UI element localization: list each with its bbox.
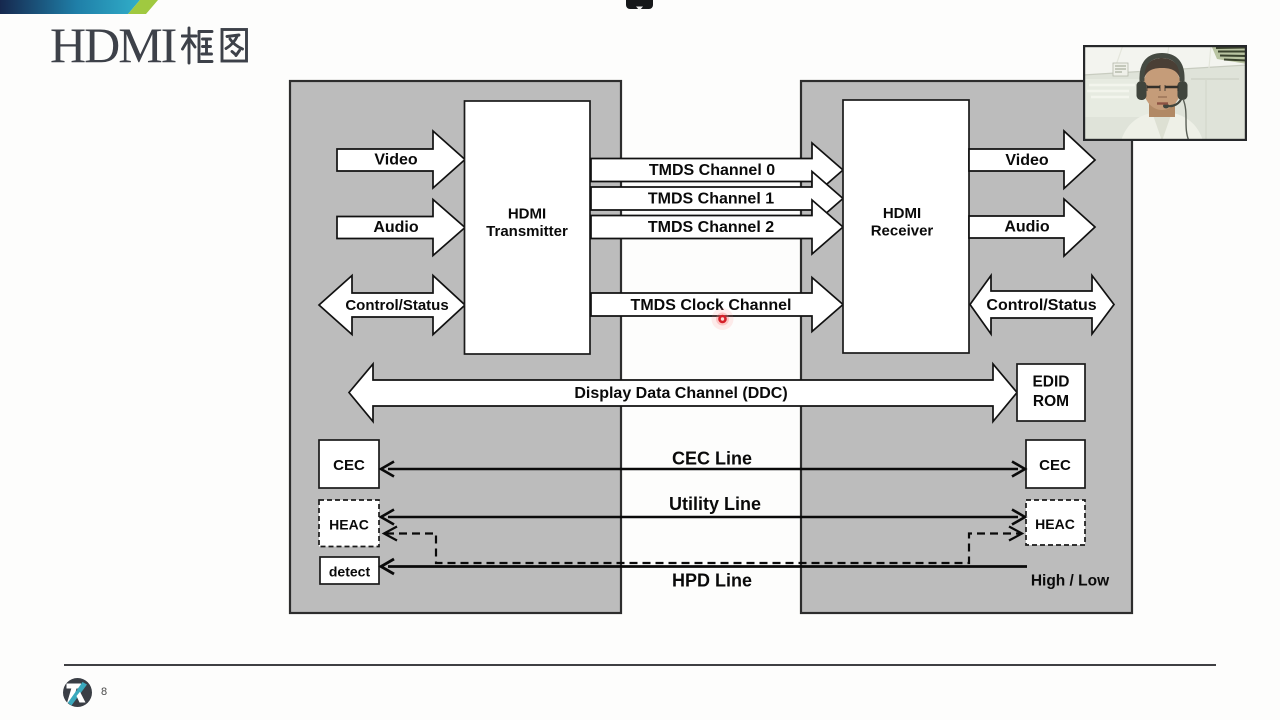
- svg-text:Utility Line: Utility Line: [669, 494, 761, 514]
- svg-text:TMDS Channel 0: TMDS Channel 0: [649, 162, 775, 179]
- svg-text:Receiver: Receiver: [871, 223, 934, 240]
- svg-text:Display Data Channel (DDC): Display Data Channel (DDC): [574, 385, 787, 402]
- svg-text:Audio: Audio: [373, 219, 419, 236]
- svg-text:ROM: ROM: [1033, 393, 1069, 410]
- svg-text:TMDS Channel 1: TMDS Channel 1: [648, 191, 774, 208]
- svg-text:CEC: CEC: [333, 457, 365, 474]
- svg-text:Control/Status: Control/Status: [986, 297, 1096, 314]
- svg-text:Audio: Audio: [1004, 219, 1050, 236]
- svg-text:EDID: EDID: [1032, 374, 1069, 391]
- svg-text:HDMI: HDMI: [883, 205, 921, 222]
- svg-text:HPD Line: HPD Line: [672, 571, 752, 591]
- svg-text:HDMI: HDMI: [508, 206, 546, 223]
- svg-text:HEAC: HEAC: [1035, 516, 1075, 532]
- svg-text:Control/Status: Control/Status: [345, 297, 448, 314]
- svg-text:TMDS Channel 2: TMDS Channel 2: [648, 219, 774, 236]
- svg-text:High / Low: High / Low: [1031, 573, 1110, 590]
- svg-text:Video: Video: [1005, 152, 1049, 169]
- svg-text:Video: Video: [374, 152, 418, 169]
- svg-text:HEAC: HEAC: [329, 517, 369, 533]
- svg-text:CEC: CEC: [1039, 457, 1071, 474]
- svg-text:TMDS Clock Channel: TMDS Clock Channel: [631, 297, 792, 314]
- svg-text:detect: detect: [329, 564, 371, 580]
- svg-text:Transmitter: Transmitter: [486, 223, 568, 240]
- svg-text:CEC Line: CEC Line: [672, 449, 752, 469]
